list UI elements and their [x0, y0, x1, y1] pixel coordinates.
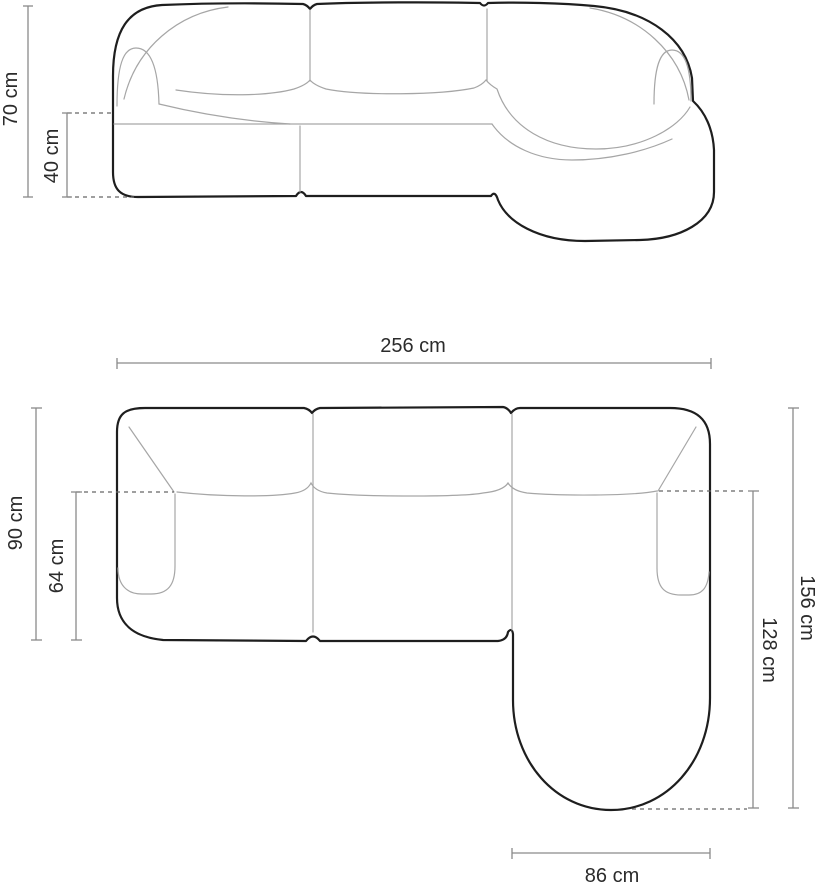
plan-chaise-depth-dimension: 128 cm [748, 491, 780, 808]
plan-width-dimension: 256 cm [117, 335, 711, 369]
front-height-dim-label: 70 cm [0, 72, 22, 126]
sofa-technical-drawing: 70 cm 40 cm 256 cm [0, 0, 819, 884]
plan-seat-depth-dim-label: 64 cm [46, 539, 68, 593]
front-left-arm-arch [117, 48, 159, 106]
plan-chaise-width-dimension: 86 cm [512, 848, 710, 884]
front-sofa-outline [113, 2, 714, 241]
front-elevation-view: 70 cm 40 cm [0, 2, 714, 241]
front-chaise-front-rim [492, 124, 672, 160]
front-right-arm-inner-curve [590, 8, 689, 100]
plan-depth-dimension: 90 cm [5, 408, 42, 640]
plan-width-dim-label: 256 cm [380, 335, 446, 357]
plan-left-corner-miter [129, 427, 174, 492]
plan-seat-depth-dimension: 64 cm [46, 492, 82, 640]
front-seat-height-dimension: 40 cm [41, 113, 72, 197]
top-plan-view: 256 cm 90 cm 64 cm 156 cm 128 cm [5, 335, 818, 884]
plan-right-corner-miter [658, 427, 696, 491]
front-seat-line [176, 80, 690, 149]
plan-backrest-line [177, 483, 657, 496]
plan-left-arm-inner [118, 494, 175, 594]
plan-right-arm-inner [657, 493, 709, 595]
plan-depth-dim-label: 90 cm [5, 496, 27, 550]
plan-chaise-width-dim-label: 86 cm [585, 865, 639, 884]
front-left-arm-inner-curve [124, 7, 228, 99]
plan-total-depth-dimension: 156 cm [788, 408, 818, 808]
front-height-dimension: 70 cm [0, 6, 33, 197]
front-left-arm-seat-transition [159, 104, 290, 124]
plan-sofa-outline [117, 407, 710, 810]
front-seat-height-dim-label: 40 cm [41, 129, 63, 183]
plan-total-depth-dim-label: 156 cm [796, 575, 818, 641]
plan-chaise-depth-dim-label: 128 cm [758, 617, 780, 683]
